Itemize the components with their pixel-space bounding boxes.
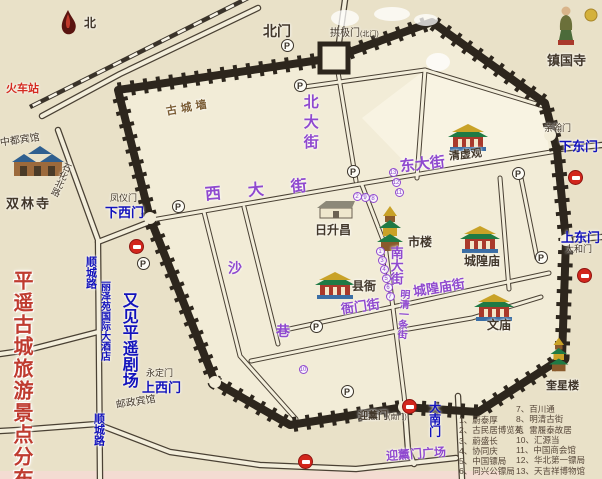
yellow-dot-icon [585, 9, 597, 21]
big-south-gate-label: 大南门 [428, 401, 441, 437]
legend-item: 6、同兴公镖局 [459, 466, 523, 476]
pingyao-tourist-map: 火车站 北 中都宾馆 双林寺 石化北路 凤仪门 下西门 顺城路 顺城路 丽泽苑国… [0, 0, 602, 479]
north-gate-label: 北门 [263, 24, 291, 39]
train-station-label: 火车站 [6, 84, 39, 96]
south-street-label: 南大街 [389, 246, 403, 285]
confucius-temple-label: 文庙 [487, 319, 511, 332]
rishengchang-label: 日升昌 [315, 224, 351, 237]
legend-item: 3、蔚盛长 [459, 436, 523, 446]
poi-marker: 10 [299, 365, 308, 374]
yongding-gate-label: 永定门 [146, 369, 173, 378]
qinhan-gate-label: 亲翰门 [544, 124, 571, 133]
parking-icon: P [535, 251, 548, 264]
compass-north-label: 北 [84, 17, 96, 30]
parking-icon: P [137, 257, 150, 270]
shuttle-stop-icon [568, 170, 583, 185]
parking-icon: P [341, 385, 354, 398]
bottom-strip [0, 471, 500, 479]
sha-lane-label-1: 沙 [228, 261, 242, 276]
legend-item: 1、蔚泰厚 [459, 415, 523, 425]
poi-marker: 7 [386, 292, 395, 301]
county-yamen-label: 县衙 [352, 280, 376, 293]
shuttle-stop-icon [129, 239, 144, 254]
shuttle-stop-icon [298, 454, 313, 469]
parking-icon: P [512, 167, 525, 180]
legend-item: 13、天吉祥博物馆 [516, 466, 585, 476]
north-gate-barbican [320, 44, 348, 72]
fengyi-gate-label: 凤仪门 [110, 194, 137, 203]
parking-icon: P [172, 200, 185, 213]
zhenguo-temple-label: 镇国寺 [547, 54, 586, 68]
chenghuang-temple-label: 城隍庙 [464, 255, 500, 268]
legend-item: 8、明清古街 [516, 414, 585, 424]
lower-east-gate-label: 下东门 [559, 140, 598, 154]
lizeyuan-hotel-label: 丽泽苑国际大酒店 [98, 281, 109, 361]
taihe-gate-label: 太和门 [565, 245, 592, 254]
parking-icon: P [281, 39, 294, 52]
sha-lane-label-2: 巷 [276, 324, 290, 339]
poi-marker: 12 [392, 178, 401, 187]
poi-marker: 4 [380, 265, 389, 274]
poi-marker: 1 [376, 247, 385, 256]
legend-item: 4、协同庆 [459, 446, 523, 456]
parking-icon: P [294, 79, 307, 92]
map-title: 平遥古城旅游景点分布图 [10, 270, 31, 479]
north-street-label: 北大街 [302, 94, 318, 154]
poi-marker: 3 [378, 256, 387, 265]
parking-icon: P [310, 320, 323, 333]
legend-item: 10、汇源当 [516, 435, 585, 445]
legend-column-1: 1、蔚泰厚2、古民居博览苑3、蔚盛长4、协同庆5、中国镖局6、同兴公镖局 [459, 415, 523, 477]
legend-item: 9、雷履泰故居 [516, 425, 585, 435]
parking-icon: P [347, 165, 360, 178]
city-tower-label: 市楼 [408, 236, 432, 249]
shuttle-stop-icon [402, 399, 417, 414]
poi-marker: 11 [395, 188, 404, 197]
legend-item: 2、古民居博览苑 [459, 425, 523, 435]
yingxun-gate-label: 迎薰门(南门) [358, 412, 407, 423]
poi-marker: 8 [369, 194, 378, 203]
kuixing-tower-label: 奎星楼 [546, 381, 579, 393]
legend-item: 12、华北第一镖局 [516, 455, 585, 465]
gongji-gate-label: 拱极门(北门) [330, 29, 379, 40]
shuttle-stop-icon [577, 268, 592, 283]
upper-east-gate-label: 上东门 [561, 231, 600, 245]
youjian-pingyao-theater-label: 又见平遥剧场 [119, 292, 136, 388]
upper-west-gate-label: 上西门 [142, 381, 181, 395]
legend-item: 5、中国镖局 [459, 456, 523, 466]
mingqing-street-label: 明清一条街 [394, 289, 408, 340]
legend-column-2: 7、百川通8、明清古街9、雷履泰故居10、汇源当11、中国商会馆12、华北第一镖… [516, 404, 585, 476]
lower-west-gate-label: 下西门 [105, 206, 144, 220]
shuncheng-road-label-1: 顺城路 [84, 256, 96, 289]
poi-marker: 13 [389, 168, 398, 177]
poi-marker: 6 [384, 283, 393, 292]
poi-marker: 5 [382, 274, 391, 283]
legend-item: 11、中国商会馆 [516, 445, 585, 455]
map-graphics [0, 0, 602, 479]
shuncheng-road-label-2: 顺城路 [92, 413, 104, 446]
legend-item: 7、百川通 [516, 404, 585, 414]
